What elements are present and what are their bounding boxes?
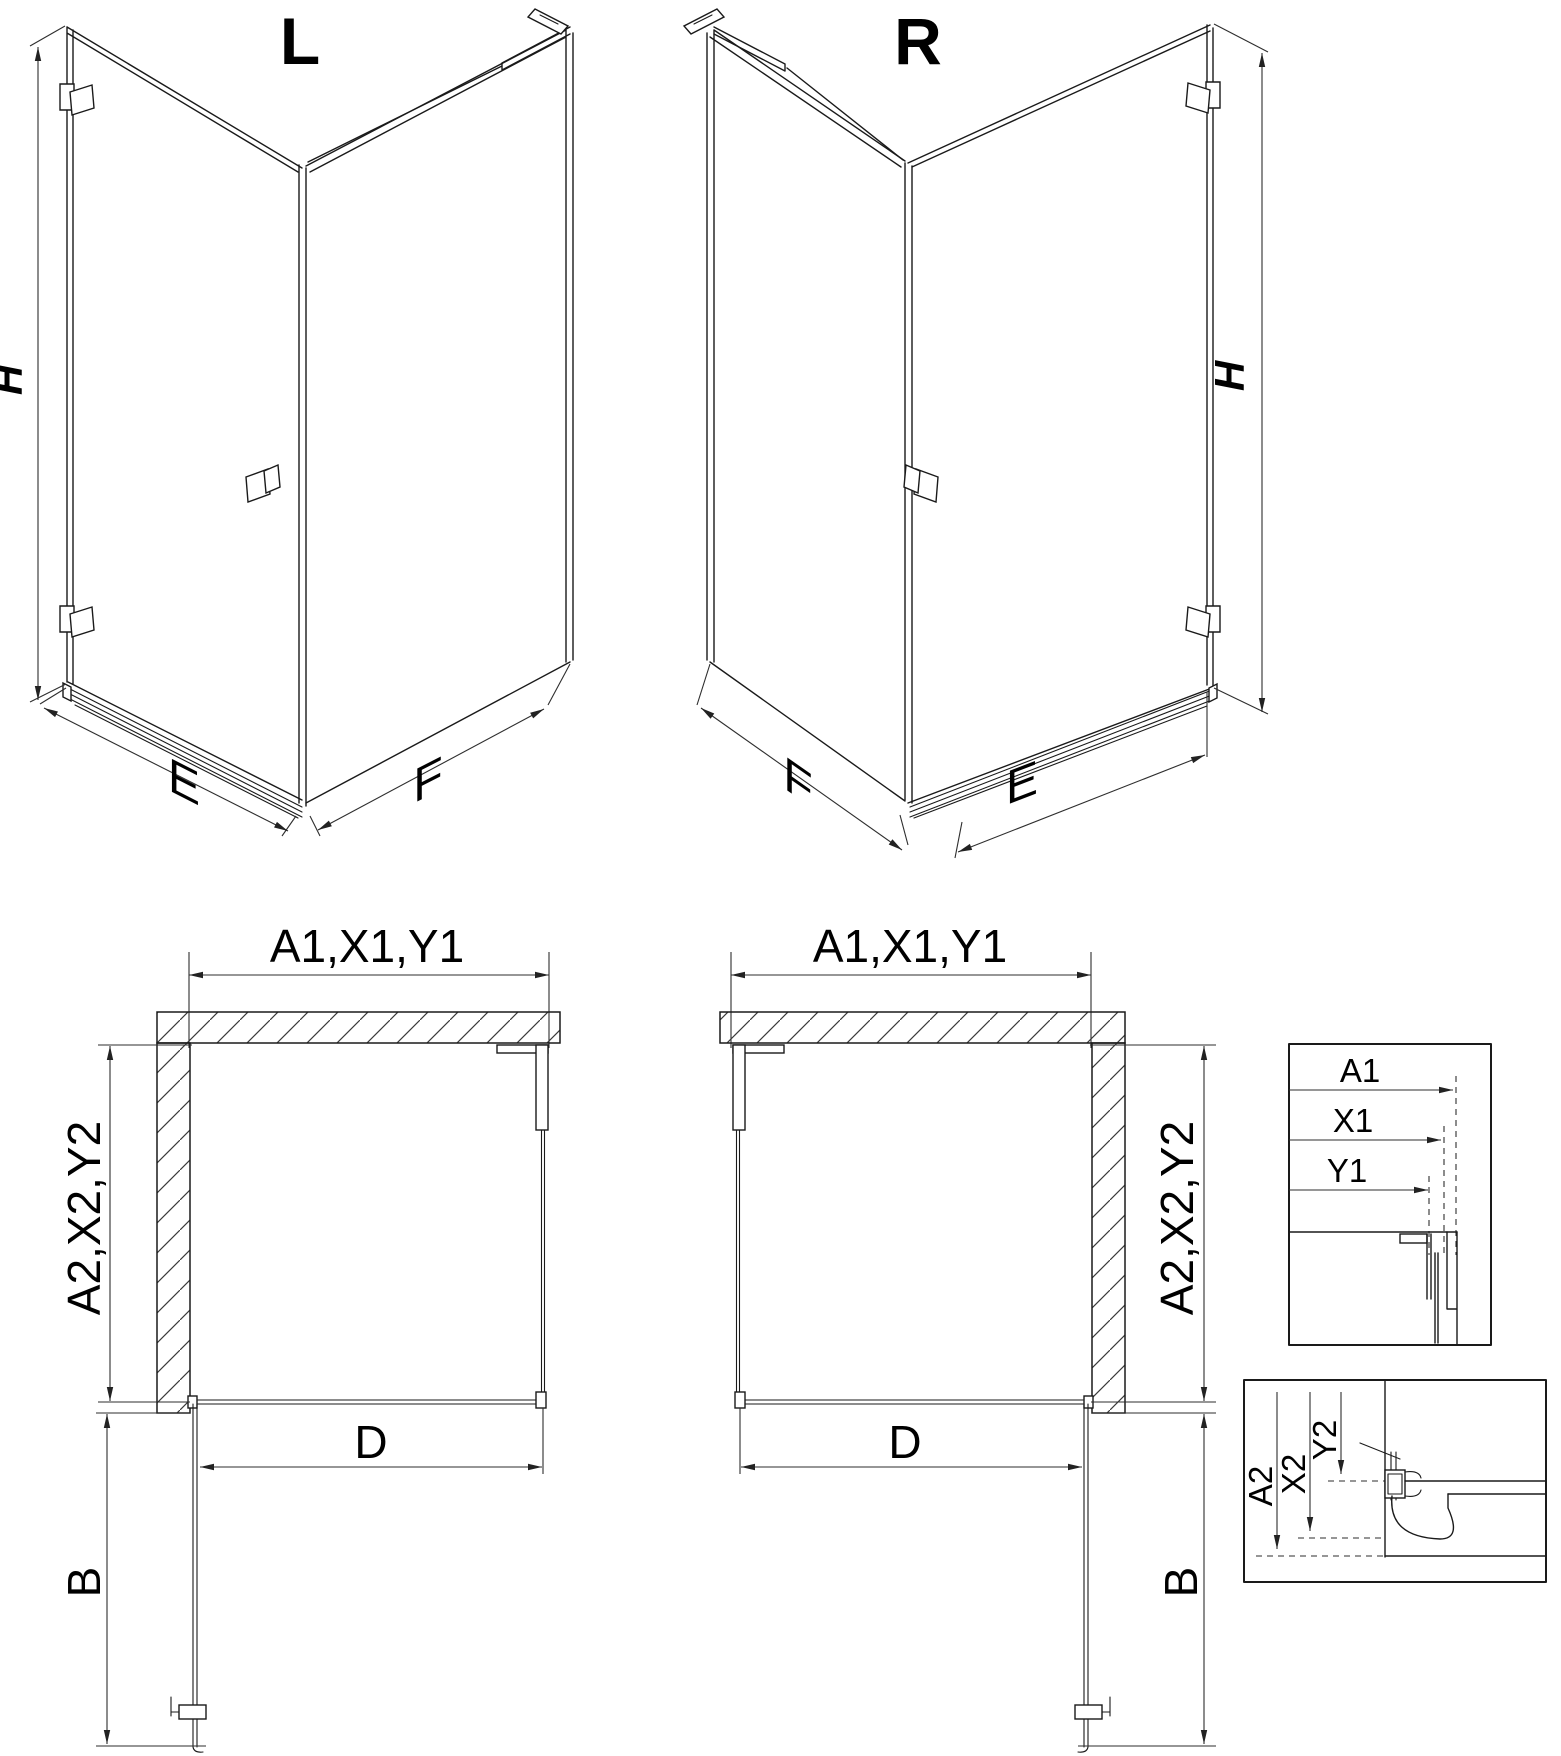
detail-label-a2: A2: [1242, 1466, 1279, 1506]
header-support-bar: [308, 9, 570, 162]
fixed-glass-line: [542, 1130, 545, 1399]
door-handle: [1075, 1697, 1110, 1719]
header-wall-bracket: [684, 9, 724, 34]
dim-label-b: B: [58, 1567, 110, 1598]
door-open-line: [1075, 1404, 1110, 1752]
iso-view-right: R: [684, 4, 1268, 858]
dim-label-f: F: [413, 745, 442, 814]
detail-label-y2: Y2: [1306, 1420, 1343, 1460]
tray-profile-section: [1360, 1380, 1546, 1557]
dim-label-e: E: [168, 747, 200, 817]
dim-label-e: E: [1006, 749, 1038, 815]
wall-left: [157, 1043, 190, 1413]
hinge-top: [60, 84, 94, 115]
header-wall-bracket: [528, 9, 568, 34]
dimension-opening: D: [200, 1408, 543, 1474]
door-open-line: [171, 1404, 206, 1752]
door-handle-knob: [904, 465, 938, 502]
fixed-glass-panel: [306, 30, 573, 803]
shower-enclosure-diagram: L: [0, 0, 1561, 1756]
dimension-h-left: H: [0, 26, 66, 702]
dimension-swing: B: [58, 1413, 206, 1746]
dim-label-a1x1y1: A1,X1,Y1: [813, 920, 1007, 972]
dimension-e-left: E: [40, 688, 296, 836]
door-glass-panel: [67, 27, 302, 800]
detail-label-y1: Y1: [1327, 1152, 1367, 1189]
view-label-r: R: [894, 4, 942, 78]
corner-bracket: [733, 1045, 784, 1130]
corner-bracket: [497, 1045, 548, 1130]
detail-label-a1: A1: [1340, 1052, 1380, 1089]
fixed-glass-line: [737, 1130, 740, 1399]
corner-profile-section: [1289, 1232, 1457, 1345]
door-closed-line: [188, 1392, 546, 1408]
corner-edge: [299, 165, 306, 806]
wall-top: [720, 1012, 1125, 1043]
dim-label-b: B: [1155, 1567, 1207, 1598]
door-glass-panel: [908, 25, 1213, 803]
door-closed-line: [735, 1392, 1093, 1408]
fixed-glass-panel: [707, 30, 905, 801]
dim-label-h: H: [0, 363, 31, 395]
wall-top: [157, 1012, 560, 1043]
plan-view-right: A1,X1,Y1 A2,X2,Y2: [720, 920, 1216, 1752]
detail-arrow-x2: X2: [1275, 1392, 1385, 1538]
dimension-f-left: F: [310, 664, 570, 836]
dim-label-d: D: [354, 1416, 387, 1468]
detail-box-horizontal: A1 X1 Y1: [1289, 1044, 1491, 1345]
detail-arrow-y2: Y2: [1306, 1392, 1385, 1481]
hinge-bottom: [1186, 606, 1220, 637]
detail-label-x1: X1: [1333, 1102, 1373, 1139]
dim-label-a2x2y2: A2,X2,Y2: [1151, 1121, 1203, 1315]
dim-label-f: F: [783, 746, 812, 819]
detail-arrow-a2: A2: [1242, 1392, 1385, 1556]
detail-arrow-a1: A1: [1289, 1052, 1456, 1255]
technical-drawing-page: L: [0, 0, 1561, 1756]
detail-box-vertical: A2 X2 Y2: [1242, 1380, 1546, 1582]
hinge-top: [1186, 82, 1220, 113]
dim-label-h: H: [1206, 359, 1253, 391]
dim-label-a1x1y1: A1,X1,Y1: [270, 920, 464, 972]
dimension-opening: D: [740, 1408, 1082, 1474]
iso-view-left: L: [0, 4, 573, 836]
hinge-bottom: [60, 606, 94, 637]
plan-view-left: A1,X1,Y1: [58, 920, 560, 1752]
dimension-swing: B: [1078, 1413, 1216, 1746]
dimension-f-right: F: [697, 664, 908, 850]
dim-label-a2x2y2: A2,X2,Y2: [58, 1121, 110, 1315]
door-handle: [171, 1697, 206, 1719]
view-label-l: L: [280, 4, 320, 78]
wall-right: [1092, 1043, 1125, 1413]
door-handle-knob: [246, 465, 280, 502]
dim-label-d: D: [888, 1416, 921, 1468]
